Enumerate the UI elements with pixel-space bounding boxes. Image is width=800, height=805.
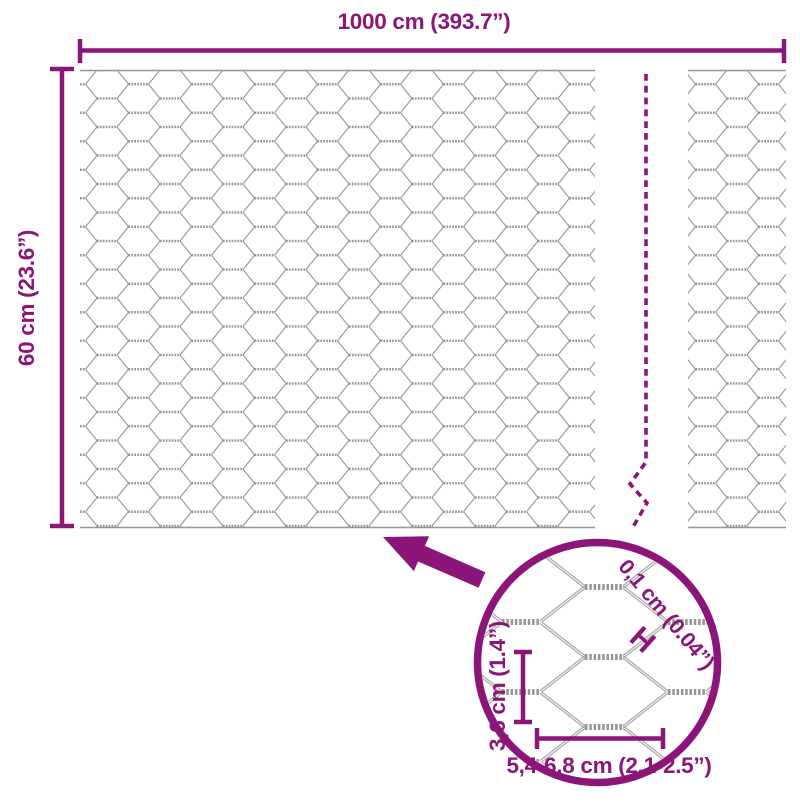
zoom-arrow-icon bbox=[383, 536, 485, 588]
diagram-canvas: 1000 cm (393.7”) 60 cm (23.6”) 3,6 cm (1… bbox=[0, 0, 800, 800]
height-dimension: 60 cm (23.6”) bbox=[14, 69, 74, 526]
mesh-height-label: 3,6 cm (1.4”) bbox=[485, 621, 510, 751]
mesh-width-label: 5,4-6,8 cm (2.1-2.5”) bbox=[506, 753, 711, 778]
product-dimension-diagram: 1000 cm (393.7”) 60 cm (23.6”) 3,6 cm (1… bbox=[0, 0, 800, 800]
break-line bbox=[630, 74, 647, 527]
mesh-panel-left bbox=[80, 70, 595, 528]
width-dimension-label: 1000 cm (393.7”) bbox=[338, 9, 511, 34]
mesh-panel-right bbox=[688, 70, 786, 528]
height-dimension-label: 60 cm (23.6”) bbox=[14, 230, 39, 366]
width-dimension: 1000 cm (393.7”) bbox=[80, 9, 784, 63]
mesh-panel bbox=[80, 70, 786, 528]
magnifier: 3,6 cm (1.4”) 5,4-6,8 cm (2.1-2.5”) 0,1 … bbox=[477, 542, 719, 783]
